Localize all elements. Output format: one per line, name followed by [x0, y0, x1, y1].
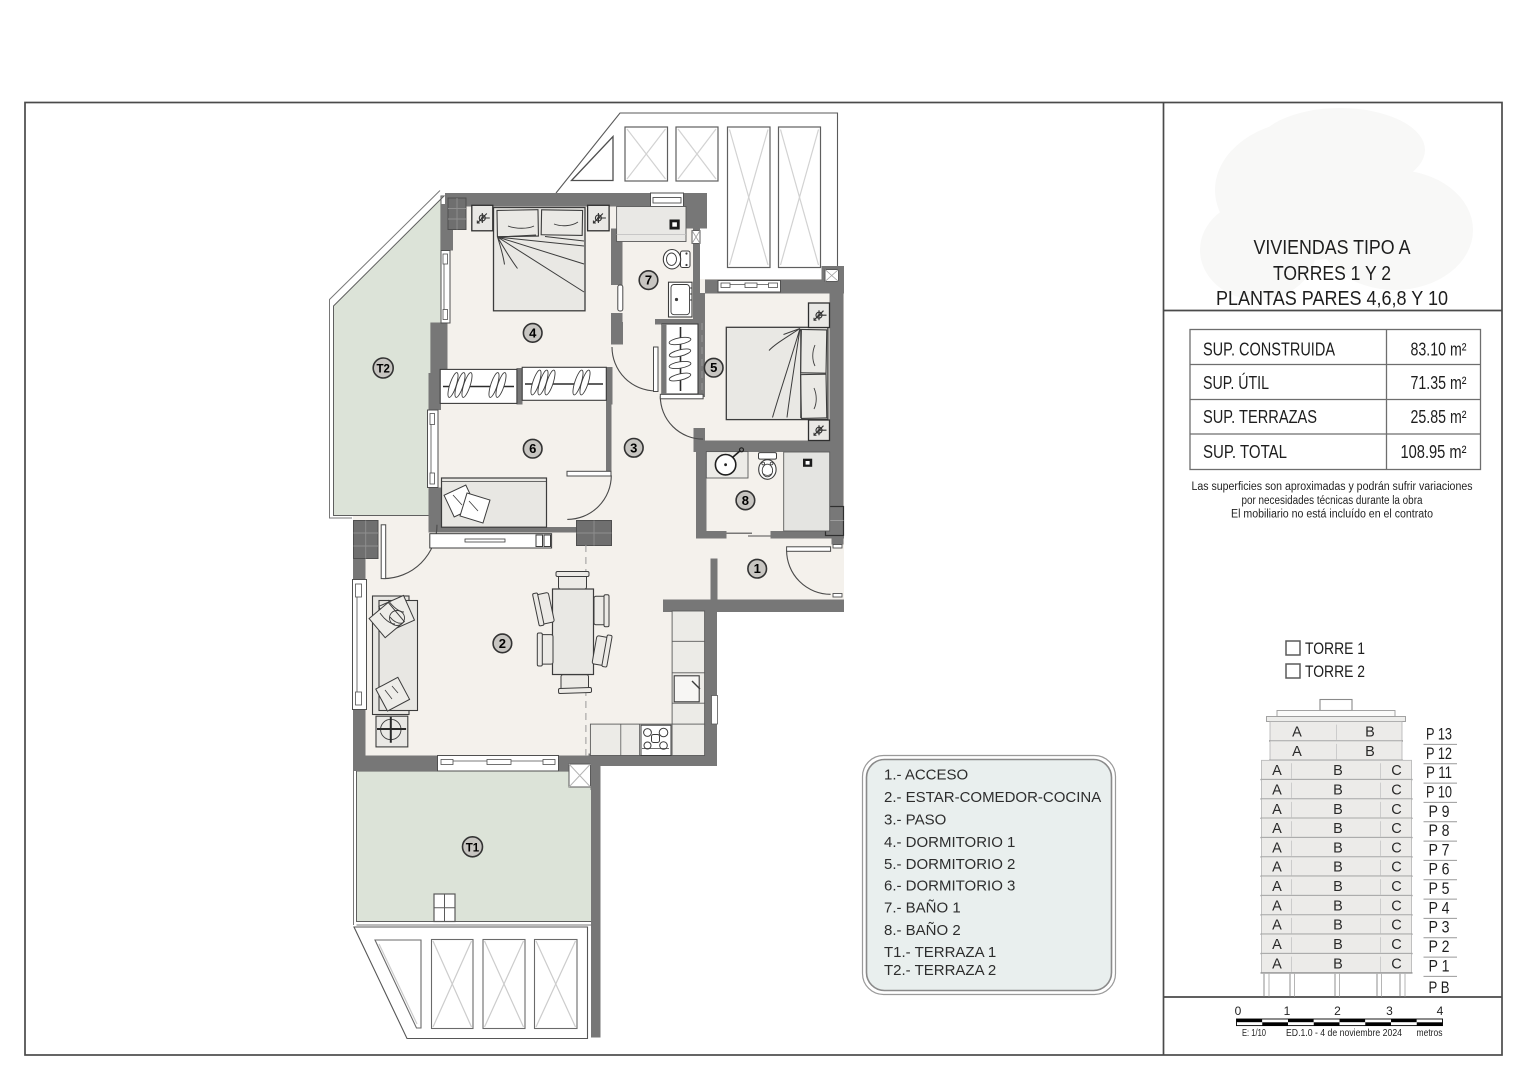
svg-text:B: B — [1333, 763, 1343, 779]
svg-text:A: A — [1272, 840, 1282, 856]
svg-text:C: C — [1391, 840, 1401, 856]
svg-text:A: A — [1272, 763, 1282, 779]
svg-text:1.- ACCESO: 1.- ACCESO — [884, 767, 968, 784]
svg-text:B: B — [1365, 744, 1375, 760]
svg-text:1: 1 — [754, 561, 761, 576]
svg-text:3: 3 — [1386, 1004, 1393, 1018]
svg-text:A: A — [1272, 860, 1282, 876]
svg-text:C: C — [1391, 860, 1401, 876]
svg-text:T1.- TERRAZA 1: T1.- TERRAZA 1 — [884, 944, 996, 961]
svg-text:T2: T2 — [376, 364, 389, 376]
svg-text:71.35 m²: 71.35 m² — [1411, 373, 1467, 393]
svg-text:C: C — [1391, 782, 1401, 798]
svg-text:Las superficies son aproximada: Las superficies son aproximadas y podrán… — [1192, 481, 1473, 493]
svg-text:metros: metros — [1417, 1028, 1443, 1039]
svg-text:B: B — [1333, 879, 1343, 895]
svg-text:C: C — [1391, 763, 1401, 779]
svg-text:P 10: P 10 — [1426, 783, 1452, 801]
svg-text:3: 3 — [630, 440, 637, 455]
svg-text:B: B — [1333, 898, 1343, 914]
svg-text:8: 8 — [742, 493, 749, 508]
svg-text:por necesidades técnicas duran: por necesidades técnicas durante la obra — [1242, 495, 1424, 507]
svg-text:T1: T1 — [466, 842, 480, 854]
svg-text:2.- ESTAR-COMEDOR-COCINA: 2.- ESTAR-COMEDOR-COCINA — [884, 789, 1101, 806]
svg-text:25.85 m²: 25.85 m² — [1411, 407, 1467, 427]
svg-text:A: A — [1272, 782, 1282, 798]
svg-text:C: C — [1391, 879, 1401, 895]
svg-text:A: A — [1272, 918, 1282, 934]
svg-text:108.95 m²: 108.95 m² — [1401, 442, 1467, 462]
svg-text:A: A — [1272, 898, 1282, 914]
svg-text:4: 4 — [529, 325, 537, 340]
svg-text:C: C — [1391, 956, 1401, 972]
svg-text:B: B — [1333, 840, 1343, 856]
svg-text:8.- BAÑO 2: 8.- BAÑO 2 — [884, 922, 961, 939]
svg-text:5.- DORMITORIO 2: 5.- DORMITORIO 2 — [884, 856, 1015, 873]
svg-text:T2.- TERRAZA 2: T2.- TERRAZA 2 — [884, 962, 996, 979]
svg-text:TORRES 1 Y 2: TORRES 1 Y 2 — [1273, 263, 1391, 285]
svg-text:2: 2 — [499, 636, 506, 651]
svg-text:P 7: P 7 — [1429, 841, 1450, 859]
svg-text:5: 5 — [710, 360, 717, 375]
svg-text:SUP. CONSTRUIDA: SUP. CONSTRUIDA — [1203, 340, 1335, 360]
svg-text:A: A — [1272, 821, 1282, 837]
svg-text:C: C — [1391, 821, 1401, 837]
svg-text:SUP. TERRAZAS: SUP. TERRAZAS — [1203, 407, 1317, 427]
svg-text:7.- BAÑO 1: 7.- BAÑO 1 — [884, 900, 961, 917]
svg-text:B: B — [1333, 937, 1343, 953]
svg-text:B: B — [1333, 821, 1343, 837]
svg-text:SUP. TOTAL: SUP. TOTAL — [1203, 442, 1287, 462]
svg-text:6: 6 — [529, 441, 536, 456]
svg-text:4.- DORMITORIO 1: 4.- DORMITORIO 1 — [884, 834, 1015, 851]
svg-text:83.10 m²: 83.10 m² — [1411, 340, 1467, 360]
svg-text:P 2: P 2 — [1429, 938, 1450, 956]
svg-text:A: A — [1292, 724, 1302, 740]
svg-text:B: B — [1333, 782, 1343, 798]
svg-text:B: B — [1365, 724, 1375, 740]
svg-text:A: A — [1292, 744, 1302, 760]
svg-text:2: 2 — [1334, 1004, 1341, 1018]
svg-text:VIVIENDAS TIPO A: VIVIENDAS TIPO A — [1254, 237, 1412, 259]
svg-text:3.- PASO: 3.- PASO — [884, 812, 946, 829]
svg-text:P 11: P 11 — [1426, 764, 1452, 782]
svg-text:TORRE 1: TORRE 1 — [1305, 639, 1365, 658]
svg-text:P 9: P 9 — [1429, 803, 1450, 821]
svg-text:TORRE 2: TORRE 2 — [1305, 662, 1365, 681]
svg-text:El mobiliario no está incluído: El mobiliario no está incluído en el con… — [1231, 509, 1433, 521]
svg-text:C: C — [1391, 937, 1401, 953]
svg-text:0: 0 — [1235, 1004, 1242, 1018]
svg-text:C: C — [1391, 898, 1401, 914]
svg-text:B: B — [1333, 918, 1343, 934]
svg-text:A: A — [1272, 937, 1282, 953]
svg-text:C: C — [1391, 918, 1401, 934]
svg-text:E: 1/10: E: 1/10 — [1242, 1028, 1266, 1039]
svg-text:B: B — [1333, 802, 1343, 818]
svg-text:PLANTAS PARES 4,6,8 Y 10: PLANTAS PARES 4,6,8 Y 10 — [1216, 288, 1448, 310]
svg-text:P 5: P 5 — [1429, 880, 1450, 898]
svg-text:4: 4 — [1437, 1004, 1444, 1018]
svg-text:P 4: P 4 — [1429, 899, 1450, 917]
svg-text:A: A — [1272, 879, 1282, 895]
svg-text:SUP. ÚTIL: SUP. ÚTIL — [1203, 372, 1269, 393]
svg-text:6.- DORMITORIO 3: 6.- DORMITORIO 3 — [884, 878, 1015, 895]
svg-text:P 8: P 8 — [1429, 822, 1450, 840]
svg-text:B: B — [1333, 956, 1343, 972]
svg-text:B: B — [1333, 860, 1343, 876]
svg-text:A: A — [1272, 956, 1282, 972]
svg-text:P 12: P 12 — [1426, 745, 1452, 763]
svg-text:ED.1.0 - 4 de noviembre 2024: ED.1.0 - 4 de noviembre 2024 — [1286, 1028, 1402, 1039]
svg-text:A: A — [1272, 802, 1282, 818]
svg-text:1: 1 — [1284, 1004, 1291, 1018]
svg-text:P 3: P 3 — [1429, 919, 1450, 937]
svg-text:P 1: P 1 — [1429, 957, 1450, 975]
svg-text:C: C — [1391, 802, 1401, 818]
svg-text:P 13: P 13 — [1426, 725, 1452, 743]
svg-text:7: 7 — [645, 273, 652, 288]
svg-text:P B: P B — [1429, 979, 1450, 997]
svg-text:P 6: P 6 — [1429, 861, 1450, 879]
